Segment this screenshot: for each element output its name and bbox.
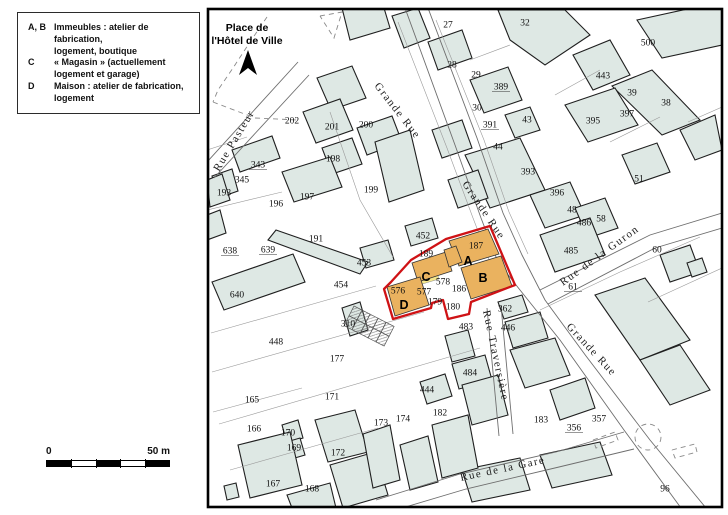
- map-content: 2022012001983433451931961971991916386392…: [207, 8, 722, 514]
- parcel-label-169: 169: [287, 444, 302, 454]
- parcel-label-172: 172: [331, 449, 346, 459]
- building: [432, 415, 478, 478]
- parcel-label-171: 171: [325, 393, 340, 403]
- parcel-label-485: 485: [564, 247, 579, 257]
- parcel-label-32: 32: [520, 19, 530, 29]
- cadastral-map: 2022012001983433451931961971991916386392…: [0, 0, 728, 515]
- parcel-label-362: 362: [498, 305, 513, 315]
- parcel-label-578: 578: [436, 278, 451, 288]
- building: [342, 8, 390, 40]
- highlight-letter-C: C: [421, 270, 430, 284]
- parcel-label-484: 484: [463, 369, 478, 379]
- parcel-label-43: 43: [522, 116, 532, 126]
- parcel-label-198: 198: [326, 155, 341, 165]
- parcel-label-483: 483: [459, 323, 474, 333]
- parcel-label-48: 48: [567, 206, 577, 216]
- parcel-label-166: 166: [247, 425, 262, 435]
- parcel-label-639: 639: [261, 246, 276, 256]
- parcel-label-452: 452: [416, 232, 431, 242]
- parcel-label-196: 196: [269, 200, 284, 210]
- parcel-label-345: 345: [235, 176, 250, 186]
- parcel-label-186: 186: [452, 285, 467, 295]
- place-label-line2: l'Hôtel de Ville: [211, 35, 282, 47]
- building: [445, 330, 475, 362]
- parcel-label-182: 182: [433, 409, 448, 419]
- building: [432, 120, 472, 158]
- dashed-boundary-line: [320, 12, 342, 38]
- building: [400, 436, 438, 490]
- parcel-label-201: 201: [325, 123, 340, 133]
- building: [392, 8, 430, 48]
- parcel-label-60: 60: [652, 246, 662, 256]
- parcel-label-396: 396: [550, 189, 565, 199]
- parcel-label-58: 58: [596, 215, 606, 225]
- parcel-label-168: 168: [305, 485, 320, 495]
- parcel-label-202: 202: [285, 117, 300, 127]
- figure-canvas: A, B Immeubles : atelier de fabrication,…: [0, 0, 728, 515]
- building: [207, 210, 226, 240]
- parcel-label-27: 27: [443, 21, 453, 31]
- parcel-label-453: 453: [357, 259, 372, 269]
- parcel-label-187: 187: [469, 242, 484, 252]
- parcel-label-96: 96: [660, 485, 670, 495]
- highlight-letter-A: A: [463, 254, 472, 268]
- parcel-label-444: 444: [420, 386, 435, 396]
- parcel-boundary-line: [470, 45, 510, 60]
- parcel-label-393: 393: [521, 168, 536, 178]
- north-arrow-icon: [239, 50, 257, 75]
- building: [550, 378, 595, 420]
- parcel-label-39: 39: [627, 89, 637, 99]
- parcel-label-356: 356: [567, 424, 582, 434]
- parcel-label-199: 199: [364, 186, 379, 196]
- parcel-label-389: 389: [494, 83, 509, 93]
- parcel-label-577: 577: [417, 288, 432, 298]
- parcel-label-179: 179: [428, 298, 443, 308]
- building: [375, 130, 424, 202]
- building: [540, 442, 612, 488]
- parcel-label-38: 38: [661, 99, 671, 109]
- parcel-label-357: 357: [592, 415, 607, 425]
- parcel-label-500: 500: [641, 39, 656, 49]
- place-label-line1: Place de: [226, 22, 269, 34]
- parcel-label-454: 454: [334, 281, 349, 291]
- parcel-label-174: 174: [396, 415, 411, 425]
- dashed-boundary-line: [672, 444, 697, 458]
- parcel-label-395: 395: [586, 117, 601, 127]
- parcel-label-51: 51: [634, 175, 644, 185]
- parcel-label-170: 170: [281, 429, 296, 439]
- parcel-label-173: 173: [374, 419, 389, 429]
- building: [224, 483, 239, 500]
- highlight-letter-D: D: [399, 298, 408, 312]
- parcel-label-193: 193: [217, 189, 232, 199]
- parcel-label-183: 183: [534, 416, 549, 426]
- parcel-label-167: 167: [266, 480, 281, 490]
- highlight-letter-B: B: [478, 271, 487, 285]
- parcel-label-576: 576: [391, 287, 406, 297]
- parcel-label-165: 165: [245, 396, 260, 406]
- parcel-label-30: 30: [472, 104, 482, 114]
- parcel-label-29: 29: [471, 71, 481, 81]
- parcel-label-446: 446: [501, 324, 516, 334]
- parcel-label-448: 448: [269, 338, 284, 348]
- street-label-grande-rue: Grande Rue: [564, 321, 619, 379]
- parcel-label-28: 28: [447, 61, 457, 71]
- building: [622, 143, 670, 184]
- parcel-boundary-line: [212, 312, 424, 372]
- parcel-label-180: 180: [446, 303, 461, 313]
- building: [212, 254, 305, 310]
- parcel-label-191: 191: [309, 235, 324, 245]
- parcel-label-343: 343: [251, 161, 266, 171]
- parcel-label-443: 443: [596, 72, 611, 82]
- parcel-label-177: 177: [330, 355, 345, 365]
- parcel-label-638: 638: [223, 247, 238, 257]
- parcel-label-189: 189: [419, 250, 434, 260]
- parcel-label-391: 391: [483, 121, 498, 131]
- parcel-label-310: 310: [341, 320, 356, 330]
- parcel-label-200: 200: [359, 121, 374, 131]
- parcel-label-397: 397: [620, 110, 635, 120]
- parcel-label-44: 44: [493, 143, 503, 153]
- parcel-label-486: 486: [577, 219, 592, 229]
- parcel-label-640: 640: [230, 291, 245, 301]
- parcel-label-197: 197: [300, 193, 315, 203]
- building: [637, 8, 722, 58]
